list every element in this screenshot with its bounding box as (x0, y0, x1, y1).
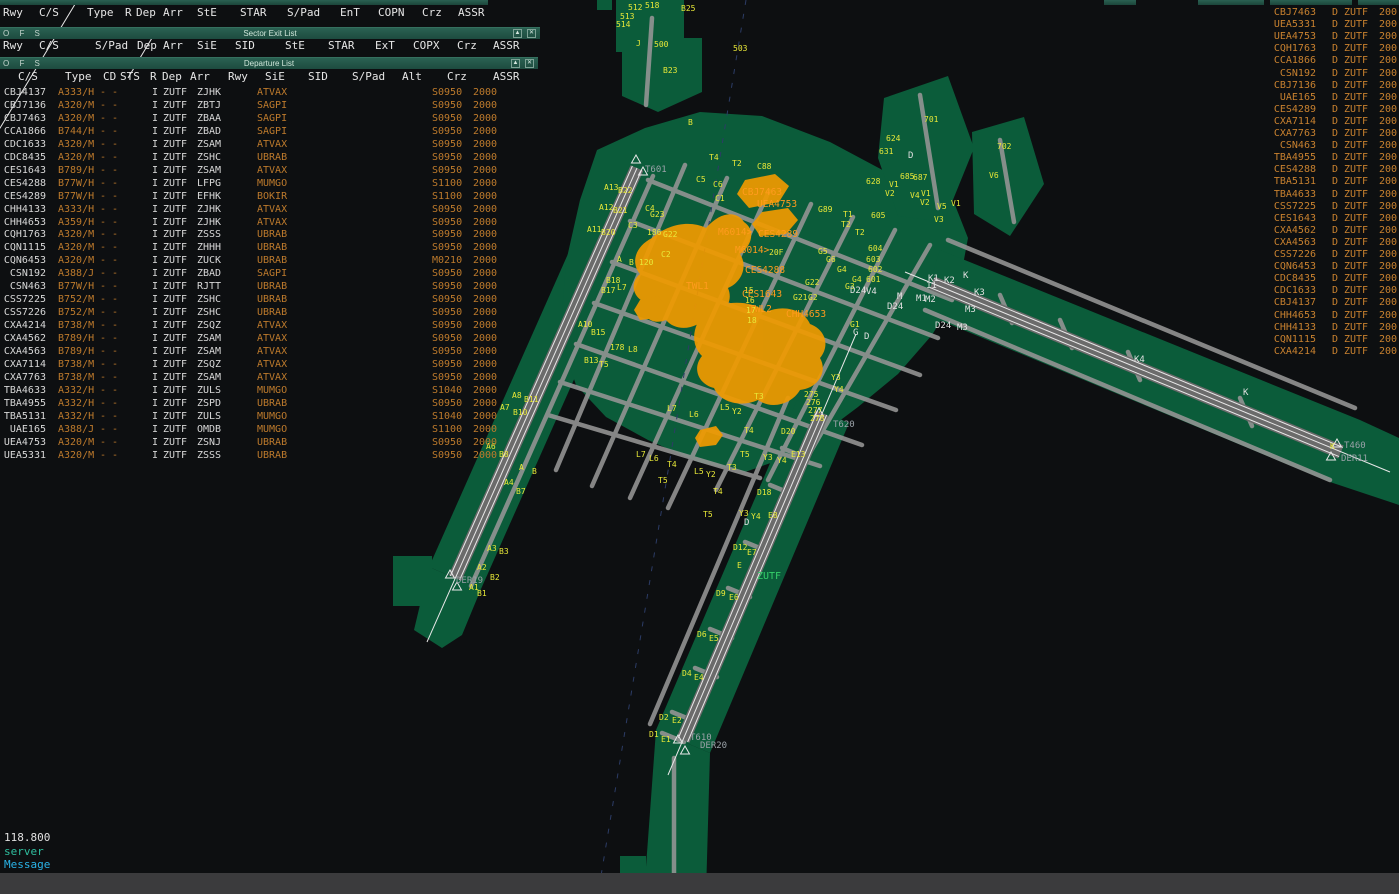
exit-strip-CES1643[interactable]: CES1643DZUTF200 (0, 213, 1399, 225)
departure-row-CXA7763[interactable]: CXA7763B738/M- -IZUTFZSAMATVAXS09502000 (0, 371, 545, 384)
exit-strip-CSS7225[interactable]: CSS7225DZUTF200 (0, 201, 1399, 213)
map-label-T4: T4 (713, 487, 723, 496)
departure-row-TBA4633[interactable]: TBA4633A332/H- -IZUTFZULSMUMGOS10402000 (0, 384, 545, 397)
cleared-level: 200 (1379, 213, 1397, 225)
departure-airport: ZUTF (1344, 19, 1368, 31)
map-label-B2: B2 (490, 573, 500, 582)
squawk: 2000 (473, 436, 497, 449)
map-label-Y2: Y2 (706, 470, 716, 479)
callsign: CXA4563 (1272, 237, 1316, 249)
cleared-level: 200 (1379, 285, 1397, 297)
callsign: TBA5131 (1272, 176, 1316, 188)
map-label-B1: B1 (477, 589, 487, 598)
sid-exit-fix: UBRAB (257, 449, 287, 462)
arrival-airport: OMDB (197, 423, 221, 436)
map-label-E: E (737, 561, 742, 570)
map-label-T4: T4 (667, 460, 677, 469)
map-label-K: K (1243, 388, 1249, 398)
callsign: CSS7225 (1272, 201, 1316, 213)
callsign: CXA7763 (1272, 128, 1316, 140)
exit-strip-CQN6453[interactable]: CQN6453DZUTF200 (0, 261, 1399, 273)
arrival-airport: ZSPD (197, 397, 221, 410)
cd-sts: - - (100, 384, 118, 397)
departure-airport: ZUTF (1344, 285, 1368, 297)
cleared-level: 200 (1379, 43, 1397, 55)
cleared-level: 200 (1379, 273, 1397, 285)
departure-airport: ZUTF (1344, 152, 1368, 164)
direction-flag: D (1332, 7, 1338, 19)
direction-flag: D (1332, 322, 1338, 334)
map-label-B7: B7 (516, 487, 526, 496)
cleared-level: 200 (1379, 31, 1397, 43)
map-label-T460: T460 (1344, 441, 1366, 451)
flight-rule: I (152, 449, 158, 462)
sid-exit-fix: MUMGO (257, 423, 287, 436)
map-label-A3: A3 (487, 544, 497, 553)
callsign: CHH4133 (1272, 322, 1316, 334)
aircraft-type: B738/M (58, 371, 94, 384)
map-label-T4: T4 (744, 426, 754, 435)
map-label-T5: T5 (740, 450, 750, 459)
departure-airport: ZUTF (1344, 104, 1368, 116)
map-label-T5: T5 (658, 476, 668, 485)
exit-strip-UEA4753[interactable]: UEA4753DZUTF200 (0, 31, 1399, 43)
map-label-Y2: Y2 (732, 407, 742, 416)
callsign: TBA4633 (2, 384, 46, 397)
exit-strip-CXA7763[interactable]: CXA7763DZUTF200 (0, 128, 1399, 140)
map-label-A: A (519, 463, 524, 472)
aircraft-type: A332/H (58, 410, 94, 423)
exit-strip-CXA7114[interactable]: CXA7114DZUTF200 (0, 116, 1399, 128)
cleared-level: 200 (1379, 225, 1397, 237)
bottom-status-bar (0, 873, 1399, 894)
exit-strip-CBJ7463[interactable]: CBJ7463DZUTF200 (0, 7, 1399, 19)
sid-exit-fix: ATVAX (257, 371, 287, 384)
sid-exit-fix: UBRAB (257, 436, 287, 449)
callsign: CSS7226 (1272, 249, 1316, 261)
exit-strip-CQN1115[interactable]: CQN1115DZUTF200 (0, 334, 1399, 346)
direction-flag: D (1332, 116, 1338, 128)
cd-sts: - - (100, 423, 118, 436)
direction-flag: D (1332, 92, 1338, 104)
cleared-level: 200 (1379, 189, 1397, 201)
callsign: CXA7114 (1272, 116, 1316, 128)
arrival-airport: ZSAM (197, 371, 221, 384)
direction-flag: D (1332, 152, 1338, 164)
direction-flag: D (1332, 128, 1338, 140)
map-label-T3: T3 (727, 463, 737, 472)
map-label-L5: L5 (694, 467, 704, 476)
cleared-level: 200 (1379, 346, 1397, 358)
map-label-ZUTF: ZUTF (757, 571, 781, 582)
cleared-level: 200 (1379, 7, 1397, 19)
map-label-K: K (1330, 442, 1335, 451)
callsign: UAE165 (1272, 92, 1316, 104)
map-label-Y3: Y3 (763, 453, 773, 462)
callsign: CXA7763 (2, 371, 46, 384)
map-label-DER11: DER11 (1341, 454, 1368, 464)
flight-rule: I (152, 371, 158, 384)
exit-strip-CSN463[interactable]: CSN463DZUTF200 (0, 140, 1399, 152)
map-label-E8: E8 (768, 511, 778, 520)
map-label-A4: A4 (504, 478, 514, 487)
map-label-Y3: Y3 (739, 509, 749, 518)
cleared-level: 200 (1379, 116, 1397, 128)
departure-row-UEA4753[interactable]: UEA4753A320/M- -IZUTFZSNJUBRABS09502000 (0, 436, 545, 449)
exit-strip-CCA1866[interactable]: CCA1866DZUTF200 (0, 55, 1399, 67)
callsign: CES1643 (1272, 213, 1316, 225)
flight-rule: I (152, 384, 158, 397)
direction-flag: D (1332, 189, 1338, 201)
map-label-L6: L6 (689, 410, 699, 419)
squawk: 2000 (473, 397, 497, 410)
direction-flag: D (1332, 31, 1338, 43)
cleared-level: 200 (1379, 140, 1397, 152)
callsign: UEA5331 (1272, 19, 1316, 31)
map-label-Y4: Y4 (751, 512, 761, 521)
exit-strip-TBA4633[interactable]: TBA4633DZUTF200 (0, 189, 1399, 201)
callsign: CES4288 (1272, 164, 1316, 176)
aircraft-type: A332/H (58, 397, 94, 410)
aircraft-type: A320/M (58, 449, 94, 462)
departure-airport: ZUTF (1344, 346, 1368, 358)
direction-flag: D (1332, 310, 1338, 322)
callsign: UEA4753 (1272, 31, 1316, 43)
cleared-level: 200 (1379, 80, 1397, 92)
map-label-E7: E7 (747, 548, 757, 557)
map-label-L7: L7 (667, 404, 677, 413)
squawk: 2000 (473, 371, 497, 384)
squawk: 2000 (473, 423, 497, 436)
map-label-T620: T620 (833, 420, 855, 430)
direction-flag: D (1332, 80, 1338, 92)
direction-flag: D (1332, 249, 1338, 261)
cleared-level: 200 (1379, 176, 1397, 188)
map-label-E6: E6 (729, 593, 739, 602)
map-label-D6: D6 (697, 630, 707, 639)
direction-flag: D (1332, 346, 1338, 358)
departure-airport: ZUTF (1344, 43, 1368, 55)
map-label-E4: E4 (694, 673, 704, 682)
cleared-level: 200 (1379, 297, 1397, 309)
callsign: CCA1866 (1272, 55, 1316, 67)
squawk: 2000 (473, 384, 497, 397)
server-status: server (4, 845, 44, 858)
exit-strip-CHH4653[interactable]: CHH4653DZUTF200 (0, 310, 1399, 322)
callsign: TBA4955 (2, 397, 46, 410)
direction-flag: D (1332, 201, 1338, 213)
exit-strip-CXA4563[interactable]: CXA4563DZUTF200 (0, 237, 1399, 249)
departure-airport: ZUTF (1344, 201, 1368, 213)
direction-flag: D (1332, 140, 1338, 152)
squawk: 2000 (473, 449, 497, 462)
cruise-level: S0950 (432, 436, 462, 449)
cd-sts: - - (100, 371, 118, 384)
map-label-Y3: Y3 (831, 373, 841, 382)
map-label-DER19: DER19 (456, 576, 483, 586)
map-label-Y4: Y4 (777, 456, 787, 465)
sid-exit-fix: MUMGO (257, 410, 287, 423)
message-button[interactable]: Message (4, 858, 50, 871)
exit-strip-CXA4562[interactable]: CXA4562DZUTF200 (0, 225, 1399, 237)
departure-airport: ZUTF (1344, 334, 1368, 346)
callsign: CBJ7463 (1272, 7, 1316, 19)
cleared-level: 200 (1379, 104, 1397, 116)
cleared-level: 200 (1379, 92, 1397, 104)
departure-row-UEA5331[interactable]: UEA5331A320/M- -IZUTFZSSSUBRABS09502000 (0, 449, 545, 462)
cruise-level: S0950 (432, 371, 462, 384)
direction-flag: D (1332, 261, 1338, 273)
atc-ground-display: 512518513514B25J500B23503B70170262463162… (0, 0, 1399, 894)
map-label-B: B (532, 467, 537, 476)
departure-airport: ZUTF (1344, 310, 1368, 322)
exit-strip-CQH1763[interactable]: CQH1763DZUTF200 (0, 43, 1399, 55)
map-label-DER20: DER20 (700, 741, 727, 751)
callsign: UEA4753 (2, 436, 46, 449)
cleared-level: 200 (1379, 201, 1397, 213)
map-label-D4: D4 (682, 669, 692, 678)
cruise-level: S0950 (432, 397, 462, 410)
callsign: CXA4562 (1272, 225, 1316, 237)
departure-airport: ZUTF (1344, 261, 1368, 273)
callsign: CQH1763 (1272, 43, 1316, 55)
flight-rule: I (152, 397, 158, 410)
cleared-level: 200 (1379, 261, 1397, 273)
callsign: CXA4214 (1272, 346, 1316, 358)
cleared-level: 200 (1379, 19, 1397, 31)
map-label-D1: D1 (649, 730, 659, 739)
map-label-Y4: Y4 (834, 385, 844, 394)
map-label-E1: E1 (661, 735, 671, 744)
map-label-D12: D12 (733, 543, 748, 552)
departure-airport: ZUTF (1344, 189, 1368, 201)
exit-strip-UAE165[interactable]: UAE165DZUTF200 (0, 92, 1399, 104)
direction-flag: D (1332, 104, 1338, 116)
exit-strip-list[interactable]: CBJ7463DZUTF200UEA5331DZUTF200UEA4753DZU… (0, 0, 1399, 370)
callsign: CBJ7136 (1272, 80, 1316, 92)
exit-strip-CSS7226[interactable]: CSS7226DZUTF200 (0, 249, 1399, 261)
direction-flag: D (1332, 43, 1338, 55)
callsign: CSN192 (1272, 68, 1316, 80)
departure-airport: ZUTF (1344, 68, 1368, 80)
direction-flag: D (1332, 213, 1338, 225)
callsign: CQN1115 (1272, 334, 1316, 346)
direction-flag: D (1332, 164, 1338, 176)
map-label-L5: L5 (720, 403, 730, 412)
cleared-level: 200 (1379, 68, 1397, 80)
exit-strip-CSN192[interactable]: CSN192DZUTF200 (0, 68, 1399, 80)
departure-airport: ZUTF (163, 384, 187, 397)
exit-strip-TBA5131[interactable]: TBA5131DZUTF200 (0, 176, 1399, 188)
cleared-level: 200 (1379, 310, 1397, 322)
callsign: UAE165 (2, 423, 46, 436)
map-label-D9: D9 (716, 589, 726, 598)
direction-flag: D (1332, 68, 1338, 80)
exit-strip-CDC8435[interactable]: CDC8435DZUTF200 (0, 273, 1399, 285)
departure-airport: ZUTF (1344, 55, 1368, 67)
departure-airport: ZUTF (163, 410, 187, 423)
departure-airport: ZUTF (1344, 273, 1368, 285)
aircraft-type: A332/H (58, 384, 94, 397)
direction-flag: D (1332, 334, 1338, 346)
callsign: CQN6453 (1272, 261, 1316, 273)
departure-airport: ZUTF (1344, 297, 1368, 309)
departure-airport: ZUTF (1344, 164, 1368, 176)
departure-airport: ZUTF (163, 449, 187, 462)
cleared-level: 200 (1379, 322, 1397, 334)
exit-strip-CHH4133[interactable]: CHH4133DZUTF200 (0, 322, 1399, 334)
departure-airport: ZUTF (1344, 237, 1368, 249)
cleared-level: 200 (1379, 334, 1397, 346)
departure-airport: ZUTF (1344, 92, 1368, 104)
cruise-level: S1040 (432, 410, 462, 423)
arrival-airport: ZULS (197, 410, 221, 423)
cleared-level: 200 (1379, 128, 1397, 140)
exit-strip-CBJ7136[interactable]: CBJ7136DZUTF200 (0, 80, 1399, 92)
callsign: TBA5131 (2, 410, 46, 423)
callsign: UEA5331 (2, 449, 46, 462)
direction-flag: D (1332, 55, 1338, 67)
map-label-E5: E5 (709, 634, 719, 643)
departure-airport: ZUTF (1344, 322, 1368, 334)
cleared-level: 200 (1379, 249, 1397, 261)
direction-flag: D (1332, 225, 1338, 237)
map-label-A2: A2 (477, 563, 487, 572)
departure-airport: ZUTF (1344, 176, 1368, 188)
exit-strip-CDC1633[interactable]: CDC1633DZUTF200 (0, 285, 1399, 297)
aircraft-type: A388/J (58, 423, 94, 436)
cd-sts: - - (100, 449, 118, 462)
callsign: CSN463 (1272, 140, 1316, 152)
cd-sts: - - (100, 397, 118, 410)
map-label-D20: D20 (781, 427, 796, 436)
exit-strip-CES4289[interactable]: CES4289DZUTF200 (0, 104, 1399, 116)
radio-frequency: 118.800 (4, 831, 50, 844)
cruise-level: S1040 (432, 384, 462, 397)
cruise-level: S1100 (432, 423, 462, 436)
departure-row-TBA5131[interactable]: TBA5131A332/H- -IZUTFZULSMUMGOS10402000 (0, 410, 545, 423)
map-label-L6: L6 (649, 454, 659, 463)
direction-flag: D (1332, 176, 1338, 188)
departure-airport: ZUTF (1344, 128, 1368, 140)
callsign: CDC1633 (1272, 285, 1316, 297)
exit-strip-CXA4214[interactable]: CXA4214DZUTF200 (0, 346, 1399, 358)
departure-airport: ZUTF (163, 371, 187, 384)
flight-rule: I (152, 423, 158, 436)
map-label-D2: D2 (659, 713, 669, 722)
flight-rule: I (152, 436, 158, 449)
arrival-airport: ZSSS (197, 449, 221, 462)
map-label-T5: T5 (703, 510, 713, 519)
departure-airport: ZUTF (1344, 225, 1368, 237)
map-label-D: D (744, 518, 749, 528)
departure-airport: ZUTF (1344, 213, 1368, 225)
map-label-L7: L7 (636, 450, 646, 459)
callsign: TBA4633 (1272, 189, 1316, 201)
map-label-D18: D18 (757, 488, 772, 497)
exit-strip-TBA4955[interactable]: TBA4955DZUTF200 (0, 152, 1399, 164)
map-label-278: 278 (810, 414, 825, 423)
sid-exit-fix: MUMGO (257, 384, 287, 397)
map-label-E2: E2 (672, 716, 682, 725)
cd-sts: - - (100, 436, 118, 449)
exit-strip-CES4288[interactable]: CES4288DZUTF200 (0, 164, 1399, 176)
callsign: CDC8435 (1272, 273, 1316, 285)
departure-airport: ZUTF (163, 436, 187, 449)
squawk: 2000 (473, 410, 497, 423)
callsign: TBA4955 (1272, 152, 1316, 164)
direction-flag: D (1332, 297, 1338, 309)
cruise-level: S0950 (432, 449, 462, 462)
callsign: CBJ4137 (1272, 297, 1316, 309)
cleared-level: 200 (1379, 55, 1397, 67)
direction-flag: D (1332, 19, 1338, 31)
sid-exit-fix: UBRAB (257, 397, 287, 410)
cd-sts: - - (100, 410, 118, 423)
callsign: CES4289 (1272, 104, 1316, 116)
direction-flag: D (1332, 237, 1338, 249)
departure-airport: ZUTF (1344, 31, 1368, 43)
arrival-airport: ZSNJ (197, 436, 221, 449)
aircraft-type: A320/M (58, 436, 94, 449)
flight-rule: I (152, 410, 158, 423)
departure-row-UAE165[interactable]: UAE165A388/J- -IZUTFOMDBMUMGOS11002000 (0, 423, 545, 436)
departure-row-TBA4955[interactable]: TBA4955A332/H- -IZUTFZSPDUBRABS09502000 (0, 397, 545, 410)
departure-airport: ZUTF (1344, 140, 1368, 152)
map-label-B3: B3 (499, 547, 509, 556)
map-label-E13: E13 (791, 450, 806, 459)
departure-airport: ZUTF (1344, 116, 1368, 128)
cleared-level: 200 (1379, 164, 1397, 176)
exit-strip-UEA5331[interactable]: UEA5331DZUTF200 (0, 19, 1399, 31)
departure-airport: ZUTF (1344, 7, 1368, 19)
callsign: CHH4653 (1272, 310, 1316, 322)
departure-airport: ZUTF (1344, 80, 1368, 92)
departure-airport: ZUTF (163, 397, 187, 410)
cleared-level: 200 (1379, 237, 1397, 249)
departure-airport: ZUTF (163, 423, 187, 436)
direction-flag: D (1332, 285, 1338, 297)
arrival-airport: ZULS (197, 384, 221, 397)
direction-flag: D (1332, 273, 1338, 285)
map-label-T3: T3 (754, 392, 764, 401)
cleared-level: 200 (1379, 152, 1397, 164)
exit-strip-CBJ4137[interactable]: CBJ4137DZUTF200 (0, 297, 1399, 309)
departure-airport: ZUTF (1344, 249, 1368, 261)
